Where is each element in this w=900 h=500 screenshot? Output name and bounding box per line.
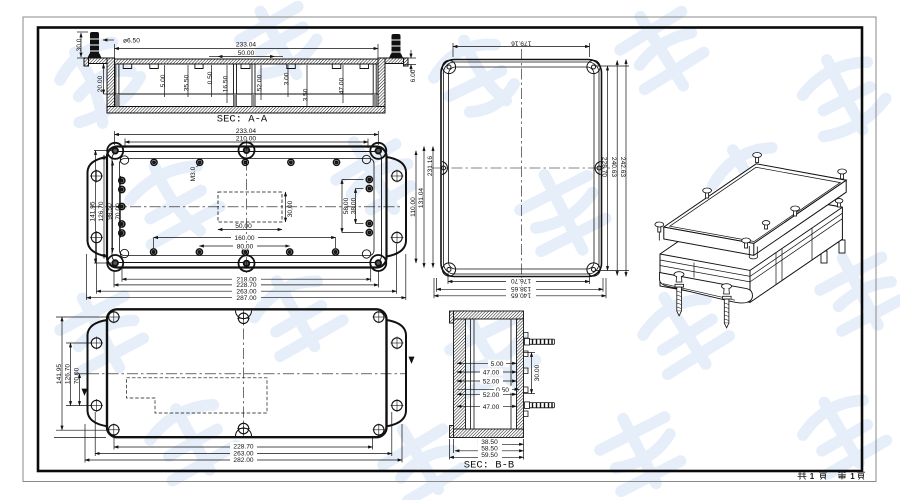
svg-text:160.00: 160.00 xyxy=(234,235,255,242)
svg-text:126.70: 126.70 xyxy=(98,201,105,222)
svg-text:SEC: A-A: SEC: A-A xyxy=(217,114,268,126)
svg-text:SEC: B-B: SEC: B-B xyxy=(464,460,514,472)
svg-text:20.00: 20.00 xyxy=(97,75,104,92)
svg-text:240.63: 240.63 xyxy=(610,157,617,178)
svg-text:282.00: 282.00 xyxy=(233,457,254,464)
svg-text:231.16: 231.16 xyxy=(427,156,434,177)
svg-text:0.50: 0.50 xyxy=(207,71,214,84)
svg-text:140.65: 140.65 xyxy=(511,291,532,298)
svg-text:5.00: 5.00 xyxy=(491,361,504,368)
svg-text:30,00: 30,00 xyxy=(287,200,294,217)
svg-text:5.00: 5.00 xyxy=(160,74,167,87)
svg-text:70.00: 70.00 xyxy=(74,367,81,384)
svg-text:30.00: 30.00 xyxy=(534,364,541,381)
svg-text:80,00: 80,00 xyxy=(237,244,254,251)
svg-text:210.00: 210.00 xyxy=(236,136,257,143)
svg-text:287.00: 287.00 xyxy=(236,295,257,302)
svg-text:38,00: 38,00 xyxy=(351,197,358,214)
svg-text:141.95: 141.95 xyxy=(90,201,97,222)
svg-text:35.50: 35.50 xyxy=(184,74,191,91)
svg-text:98.50: 98.50 xyxy=(107,203,114,220)
svg-text:242.63: 242.63 xyxy=(619,157,626,178)
svg-text:50.00: 50.00 xyxy=(238,50,255,57)
svg-text:3.00: 3.00 xyxy=(284,72,291,85)
svg-text:176.70: 176.70 xyxy=(511,277,532,284)
svg-text:47.00: 47.00 xyxy=(339,77,346,94)
svg-text:ø6.50: ø6.50 xyxy=(123,38,140,45)
svg-text:233.04: 233.04 xyxy=(236,128,257,135)
svg-text:131.04: 131.04 xyxy=(418,188,425,209)
svg-text:52.00: 52.00 xyxy=(257,74,264,91)
svg-text:52.00: 52.00 xyxy=(483,392,500,399)
svg-text:126.70: 126.70 xyxy=(65,364,72,385)
svg-text:179.16: 179.16 xyxy=(511,39,532,46)
svg-text:50,00: 50,00 xyxy=(235,223,252,230)
svg-text:M3.0: M3.0 xyxy=(190,166,197,181)
svg-text:70.00: 70.00 xyxy=(115,203,122,220)
svg-text:228.70: 228.70 xyxy=(600,157,607,178)
svg-text:16.50: 16.50 xyxy=(223,75,230,92)
svg-text:52.00: 52.00 xyxy=(483,379,500,386)
svg-text:6.00: 6.00 xyxy=(410,69,417,82)
svg-text:47.00: 47.00 xyxy=(483,404,500,411)
svg-text:1: 1 xyxy=(850,472,855,481)
svg-text:141.95: 141.95 xyxy=(56,364,63,385)
svg-text:138.65: 138.65 xyxy=(511,285,532,292)
svg-text:59.50: 59.50 xyxy=(481,452,498,459)
svg-text:58,00: 58,00 xyxy=(343,197,350,214)
svg-text:110.00: 110.00 xyxy=(410,197,417,217)
svg-text:47.00: 47.00 xyxy=(483,370,500,377)
svg-text:3.50: 3.50 xyxy=(303,88,310,101)
svg-text:233.04: 233.04 xyxy=(236,42,257,49)
svg-text:30.0: 30.0 xyxy=(76,38,83,51)
svg-text:1: 1 xyxy=(810,472,815,481)
